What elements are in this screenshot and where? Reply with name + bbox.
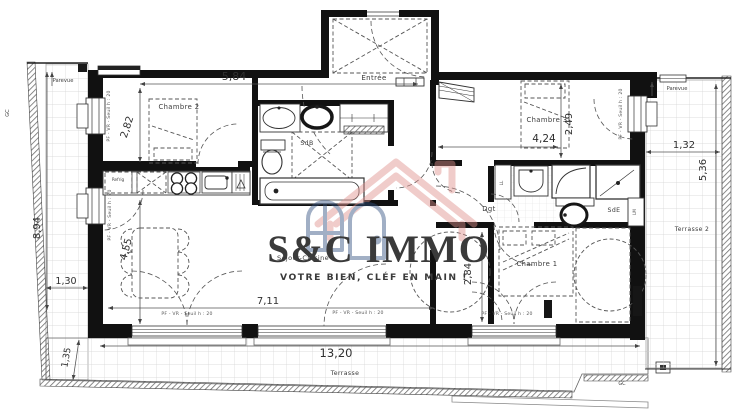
terrace-right bbox=[645, 75, 731, 372]
room-label-sdb: SdB bbox=[300, 140, 313, 147]
room-label-chambre2: Chambre 2 bbox=[158, 103, 199, 111]
window-label: PF - VR - Seuil h : 20 bbox=[107, 189, 113, 240]
toilet bbox=[556, 198, 594, 226]
label-ll: LL bbox=[499, 180, 504, 185]
entry-door-threshold bbox=[396, 78, 424, 86]
floorplan-canvas: S&C IMMO VOTRE BIEN, CLÉF EN MAIN ! Entr… bbox=[0, 0, 750, 420]
terrace-corner-block bbox=[78, 64, 87, 72]
bathroom-sdb bbox=[260, 104, 432, 204]
dim-sejour-width: 7,11 bbox=[257, 296, 279, 307]
logo-name: S&C IMMO bbox=[267, 228, 490, 271]
window-right-chambre3 bbox=[628, 96, 647, 132]
window-label: PF - VR - Seuil h : 20 bbox=[618, 88, 624, 139]
dim-ch3-height: 2,49 bbox=[564, 113, 575, 135]
room-label-sde: SdE bbox=[608, 207, 621, 214]
dim-ch3-width: 4,24 bbox=[532, 133, 556, 145]
toilet bbox=[261, 140, 285, 174]
window-bottom-sejour-right bbox=[254, 326, 390, 345]
window-sill bbox=[77, 104, 88, 128]
window-bottom-chambre1 bbox=[468, 326, 560, 345]
cooktop bbox=[168, 172, 200, 194]
wardrobe-zone bbox=[576, 228, 630, 322]
room-label-entree: Entrée bbox=[361, 74, 386, 82]
kitchen-sink bbox=[202, 172, 232, 193]
window-sill bbox=[77, 194, 88, 218]
dim-t1-height: 8,94 bbox=[32, 217, 43, 239]
chair bbox=[178, 275, 189, 297]
drain-rack bbox=[232, 172, 250, 193]
room-label-terrasse2: Terrasse 2 bbox=[674, 226, 710, 233]
dim-top-width: 5,84 bbox=[222, 70, 247, 83]
window-label: PF - VR - Seuil h : 20 bbox=[161, 311, 212, 317]
window-swing-arc bbox=[187, 271, 242, 326]
floorplan-page: S&C IMMO VOTRE BIEN, CLÉF EN MAIN ! Entr… bbox=[0, 0, 750, 420]
washbasin bbox=[302, 106, 332, 128]
label-refrig: Refrig bbox=[112, 177, 125, 182]
terrace-right-hatched-edge bbox=[722, 76, 731, 372]
sde-washbasin bbox=[514, 166, 548, 196]
window-bottom-sejour-left bbox=[128, 326, 246, 345]
room-label-sejour: Séjour-Cuisine bbox=[277, 254, 329, 262]
room-label-dgt: Dgt bbox=[482, 205, 495, 213]
dining-table bbox=[121, 228, 189, 298]
door-swing-arc bbox=[198, 124, 238, 164]
chair bbox=[121, 275, 132, 297]
room-label-chambre3: Chambre 3 bbox=[526, 116, 567, 124]
bathroom-sde bbox=[491, 165, 644, 226]
dim-ch2-height: 2,82 bbox=[119, 115, 136, 140]
radiator bbox=[344, 126, 384, 134]
window-left-chambre2 bbox=[86, 98, 105, 134]
dim-t2-height: 5,36 bbox=[698, 159, 709, 181]
dim-t1-width: 1,30 bbox=[55, 276, 76, 287]
dim-ch1-height: 2,84 bbox=[463, 263, 474, 285]
window-left-sejour bbox=[86, 188, 105, 224]
window-label: PF - VR - Seuil h : 20 bbox=[481, 311, 532, 317]
dim-t2-width: 1,32 bbox=[673, 140, 695, 151]
window-sill bbox=[646, 102, 657, 126]
radiator bbox=[544, 300, 552, 318]
label-gc-left: GC bbox=[5, 109, 11, 117]
window-label: PF - VR - Seuil h : 20 bbox=[106, 90, 112, 141]
chair bbox=[178, 229, 189, 251]
label-lm: LM bbox=[632, 209, 637, 215]
logo-tagline: VOTRE BIEN, CLÉF EN MAIN ! bbox=[280, 271, 468, 283]
label-parevue-left: Parevue bbox=[53, 78, 74, 84]
dim-terrasse-width: 13,20 bbox=[320, 346, 353, 360]
label-parevue-right: Parevue bbox=[667, 86, 688, 92]
room-label-terrasse: Terrasse bbox=[330, 370, 360, 377]
kitchen-counter bbox=[103, 167, 250, 195]
chair bbox=[178, 252, 189, 274]
label-gc-right: GC bbox=[618, 381, 626, 387]
room-label-chambre1: Chambre 1 bbox=[516, 260, 557, 268]
shower-tray bbox=[552, 165, 590, 198]
window-label: PF - VR - Seuil h : 20 bbox=[332, 310, 383, 316]
radiator bbox=[633, 286, 642, 316]
